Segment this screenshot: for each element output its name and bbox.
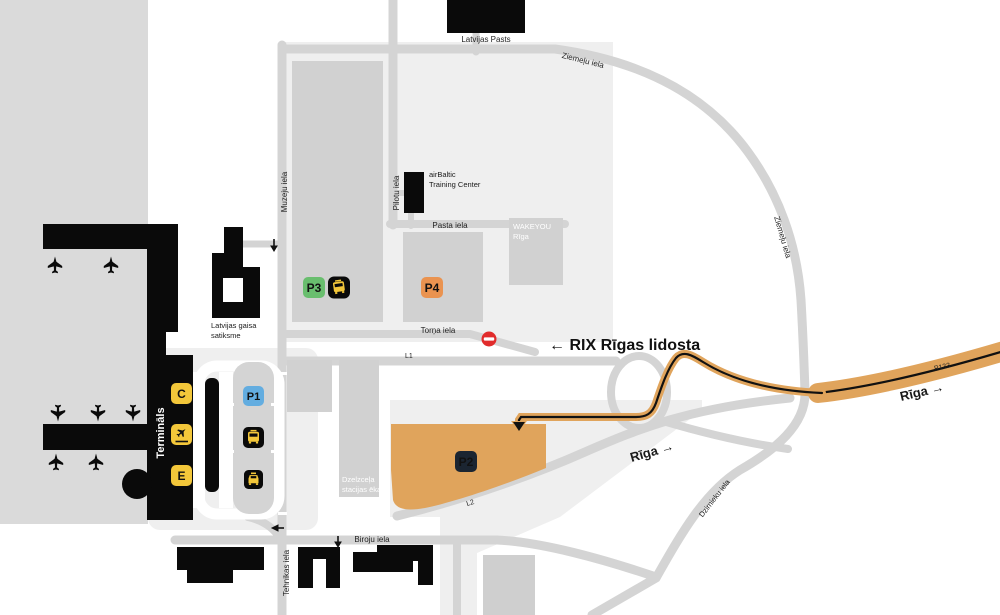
gate-badges: C E: [171, 383, 192, 486]
label-biroju: Biroju iela: [354, 535, 390, 544]
building-bottom-gray: [483, 555, 535, 615]
label-airbaltic-2: Training Center: [429, 180, 481, 189]
p1-label: P1: [247, 391, 260, 403]
label-wakeyou-1: WAKEYOU: [513, 222, 551, 231]
label-muzeju: Muzeju iela: [280, 171, 289, 212]
building-bottom-west: [177, 547, 264, 583]
building-small-block: [287, 360, 332, 412]
label-torna: Torņa iela: [421, 326, 456, 335]
label-l1: L1: [405, 353, 413, 360]
label-terminals: Termināls: [155, 407, 167, 458]
building-airbaltic: [404, 172, 424, 213]
building-bottom-center: [298, 547, 340, 588]
label-pilotu: Pilotu iela: [392, 175, 401, 210]
p2-label: P2: [459, 455, 474, 469]
bus-icon[interactable]: [328, 277, 350, 299]
terminal-curb-platform: [205, 378, 219, 492]
bus-icon[interactable]: [243, 427, 264, 448]
departures-icon[interactable]: [171, 424, 192, 445]
taxi-icon[interactable]: [244, 470, 263, 489]
gate-e-label: E: [177, 469, 185, 483]
road-ramp: [663, 421, 788, 449]
label-pasta: Pasta iela: [432, 221, 468, 230]
label-latvijas-pasts: Latvijas Pasts: [461, 35, 510, 44]
building-p4-lot: [403, 232, 483, 322]
label-tehnikas: Tehnikas iela: [282, 549, 291, 596]
label-gaisa-2: satiksme: [211, 331, 241, 340]
label-gaisa-1: Latvijas gaisa: [211, 321, 257, 330]
label-dzelzcela-2: stacijas ēka: [342, 485, 382, 494]
p4-label: P4: [425, 281, 440, 295]
building-bottom-east: [353, 545, 433, 585]
label-dzelzcela-1: Dzelzceļa: [342, 475, 375, 484]
label-airbaltic-1: airBaltic: [429, 170, 456, 179]
no-entry-icon: [482, 332, 497, 347]
gate-c-label: C: [177, 387, 186, 401]
p3-label: P3: [307, 281, 322, 295]
label-rix-direction: ← RIX Rīgas lidosta: [549, 337, 700, 354]
airport-map: C E P1 P3: [0, 0, 1000, 615]
label-wakeyou-2: Rīga: [513, 232, 530, 241]
building-latvijas-pasts: [447, 0, 525, 33]
